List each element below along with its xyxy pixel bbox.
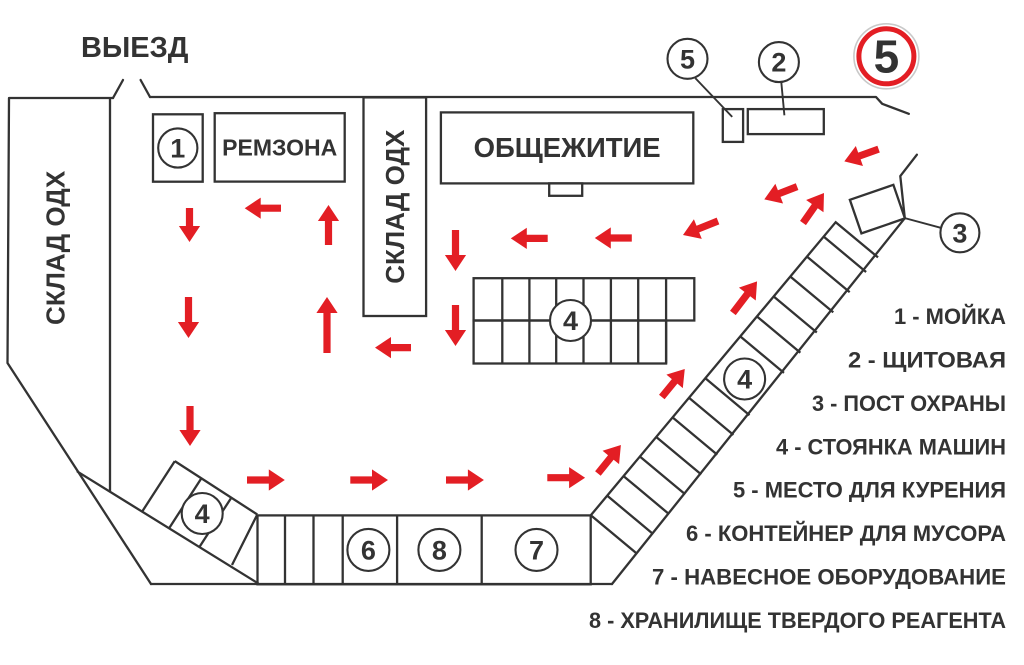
- svg-text:2 - ЩИТОВАЯ: 2 - ЩИТОВАЯ: [848, 347, 1006, 372]
- svg-text:1 - МОЙКА: 1 - МОЙКА: [894, 304, 1006, 329]
- svg-text:4 - СТОЯНКА МАШИН: 4 - СТОЯНКА МАШИН: [776, 434, 1006, 459]
- svg-text:2: 2: [771, 48, 786, 78]
- svg-text:ВЫЕЗД: ВЫЕЗД: [81, 32, 189, 64]
- svg-text:РЕМЗОНА: РЕМЗОНА: [222, 135, 337, 161]
- svg-text:ОБЩЕЖИТИЕ: ОБЩЕЖИТИЕ: [474, 132, 661, 163]
- svg-text:3 - ПОСТ ОХРАНЫ: 3 - ПОСТ ОХРАНЫ: [812, 391, 1006, 416]
- svg-text:СКЛАД ОДХ: СКЛАД ОДХ: [380, 129, 410, 284]
- svg-text:4: 4: [195, 499, 210, 529]
- svg-text:5 - МЕСТО ДЛЯ КУРЕНИЯ: 5 - МЕСТО ДЛЯ КУРЕНИЯ: [733, 478, 1006, 503]
- svg-text:6 - КОНТЕЙНЕР ДЛЯ МУСОРА: 6 - КОНТЕЙНЕР ДЛЯ МУСОРА: [686, 521, 1006, 546]
- svg-text:5: 5: [680, 44, 695, 74]
- svg-text:8: 8: [432, 536, 447, 566]
- svg-text:1: 1: [170, 134, 185, 164]
- svg-text:8 - ХРАНИЛИЩЕ ТВЕРДОГО РЕАГЕНТ: 8 - ХРАНИЛИЩЕ ТВЕРДОГО РЕАГЕНТА: [589, 608, 1006, 633]
- svg-text:6: 6: [361, 536, 376, 566]
- svg-text:4: 4: [737, 365, 752, 395]
- svg-text:5: 5: [874, 31, 900, 83]
- svg-text:4: 4: [563, 306, 578, 336]
- svg-text:3: 3: [952, 218, 967, 248]
- svg-text:7: 7: [529, 536, 544, 566]
- svg-text:7 - НАВЕСНОЕ ОБОРУДОВАНИЕ: 7 - НАВЕСНОЕ ОБОРУДОВАНИЕ: [652, 565, 1006, 590]
- svg-text:СКЛАД ОДХ: СКЛАД ОДХ: [41, 170, 71, 325]
